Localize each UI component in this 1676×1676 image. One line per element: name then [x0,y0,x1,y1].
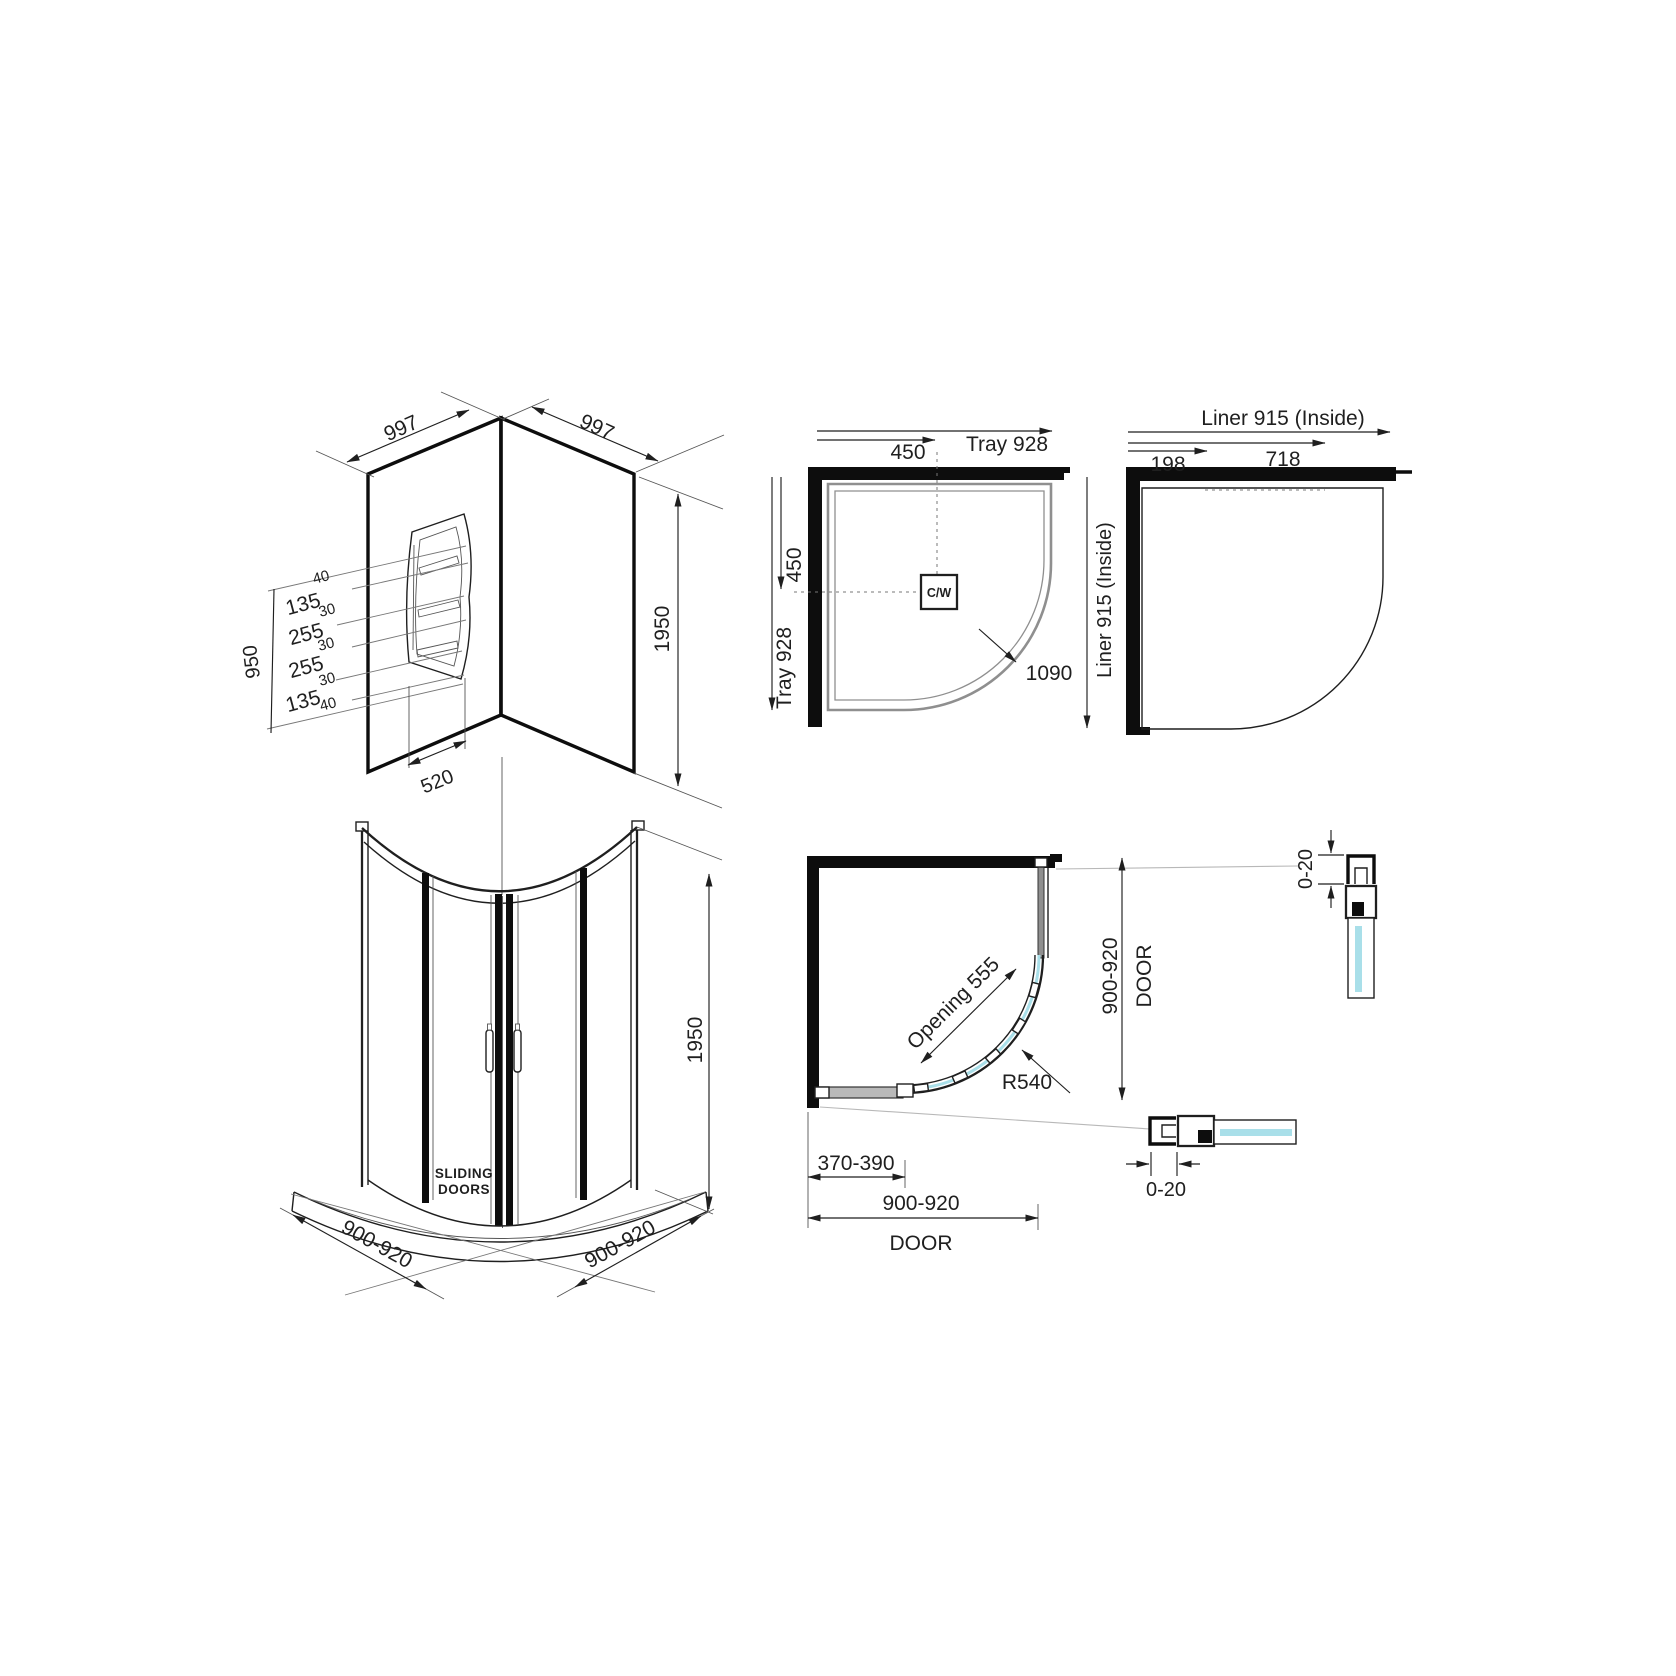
corner-walls-drawing: 950 40 135 30 255 30 255 30 135 40 997 9… [239,392,724,808]
right-panel-dark-stile [580,868,587,1200]
plan-top-wall-cap [1050,854,1062,862]
dim-shelf-40-bottom: 40 [318,694,339,715]
tray-plan-drawing: 450 Tray 928 450 Tray 928 C/W 1090 [772,431,1072,727]
bottom-rail-end-cap [815,1087,829,1098]
left-door-dark-stile [495,894,502,1226]
left-door-handle [486,1030,493,1072]
dim-liner-width: Liner 915 (Inside) [1201,407,1364,430]
front-view-drawing: SLIDING DOORS 1950 900-920 900-920 [280,757,722,1299]
left-panel-dark-stile [422,873,429,1203]
dim-tray-offset-y: 450 [783,547,806,582]
liner-outline [1142,488,1383,729]
technical-drawing-page: 950 40 135 30 255 30 255 30 135 40 997 9… [0,0,1676,1676]
dim-wall-width-left: 997 [381,411,422,446]
plan-left-wall [807,856,819,1108]
right-wall-panel [501,418,634,772]
dim-shelf-width: 520 [418,765,457,798]
dim-shelf-stack-height: 950 [239,644,265,680]
ext-line [426,1289,444,1299]
dim-shelf-135-b: 135 [283,686,323,717]
dim-wall-height: 1950 [651,606,674,653]
dim-plan-side-width: 900-920 [1099,937,1122,1014]
dim-liner-198: 198 [1150,453,1185,476]
tray-diagonal-arrow [979,629,1016,662]
dim-liner-718: 718 [1265,448,1300,471]
profile-detail-vertical: 0-20 [1295,830,1376,998]
wall-bracket-profile [1150,1118,1176,1144]
shelf-dim-labels: 40 135 30 255 30 255 30 135 40 [283,567,338,717]
waste-label: C/W [927,586,952,600]
dim-tray-width: Tray 928 [966,433,1048,456]
dim-shelf-30-c: 30 [317,669,338,690]
left-wall-panel [368,418,501,772]
sliding-doors-label-line2: DOORS [438,1182,490,1197]
dim-liner-height: Liner 915 (Inside) [1094,522,1116,678]
tray-left-wall [808,467,822,727]
shelf-950-dim-line [271,589,274,733]
tray-right-edge [706,1192,708,1211]
handle-mount [488,1024,492,1030]
right-door-handle [514,1030,521,1072]
dim-shelf-30-a: 30 [317,600,338,621]
tray-top-wall-lip [1058,467,1070,473]
left-top-cap [356,822,368,831]
dim-panel-width: 370-390 [817,1152,894,1175]
glass-pane [1355,926,1362,992]
dim-radius: R540 [1002,1071,1052,1094]
dim-plan-side-label: DOOR [1133,945,1156,1008]
profile-lock-block [1352,902,1364,916]
dim-tray-offset-x: 450 [890,441,925,464]
profile-lock-block [1198,1130,1212,1143]
curve-bottom-junction [897,1084,913,1097]
dim-tray-height: Tray 928 [773,627,796,709]
ext-line [636,435,724,472]
door-plan-drawing: Opening 555 R540 900-920 DOOR 370-390 90… [807,830,1376,1255]
handle-mount [516,1024,520,1030]
leader-line-bottom [820,1107,1150,1129]
dim-plan-bottom-width: 900-920 [882,1192,959,1215]
liner-left-wall [1126,467,1140,733]
right-door-dark-stile [506,894,513,1226]
sliding-doors-label-line1: SLIDING [435,1166,493,1181]
profile-detail-horizontal: 0-20 [1126,1116,1296,1201]
ext-line [503,399,549,419]
shower-enclosure-dimension-diagram: 950 40 135 30 255 30 255 30 135 40 997 9… [0,0,1676,1676]
panel-top-bracket [1035,858,1047,867]
dim-opening: Opening 555 [903,953,1004,1054]
fixed-panel-bar [1038,866,1044,958]
dim-shelf-40-top: 40 [311,567,332,588]
plan-top-wall [807,856,1055,868]
ext-line [557,1287,575,1297]
dim-plan-bottom-label: DOOR [890,1232,953,1255]
leader-line-top [1056,866,1298,869]
dim-adjust-horizontal: 0-20 [1146,1179,1186,1201]
top-rail-outer-curve [362,827,637,891]
dim-adjust-vertical: 0-20 [1295,849,1317,889]
top-rail-inner-curve [364,841,635,903]
dim-tray-diagonal: 1090 [1026,662,1073,685]
tray-top-wall [808,467,1064,480]
wall-bracket-profile [1348,856,1374,884]
ext-line [639,477,723,509]
ext-line [280,1208,293,1215]
ext-line [316,451,374,477]
dim-front-height: 1950 [684,1017,707,1064]
liner-left-wall-foot [1126,727,1150,735]
dim-wall-width-right: 997 [576,410,617,445]
glass-pane [1220,1129,1292,1136]
liner-plan-drawing: Liner 915 (Inside) Liner 915 (Inside) 71… [1087,407,1412,735]
ext-line [637,827,722,860]
ext-line [441,392,505,420]
